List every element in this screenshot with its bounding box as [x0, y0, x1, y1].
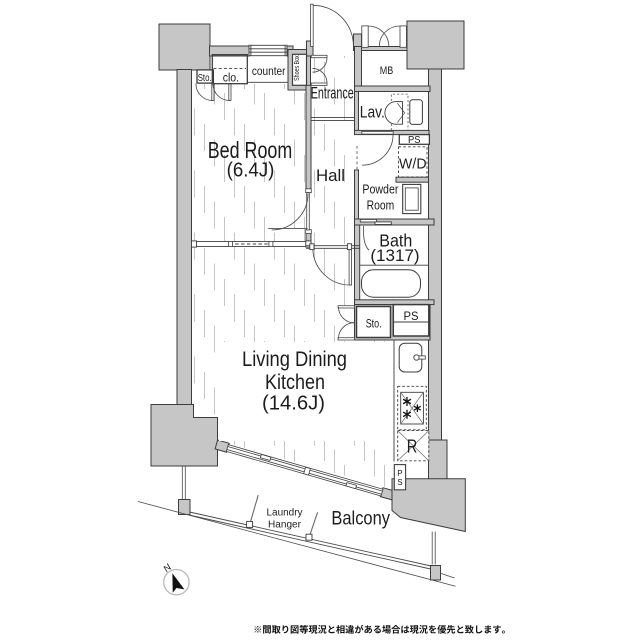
svg-text:MB: MB [380, 65, 394, 77]
svg-text:(6.4J): (6.4J) [227, 159, 275, 182]
svg-text:Entrance: Entrance [311, 85, 354, 103]
svg-text:PS: PS [408, 134, 421, 146]
svg-text:Living Dining: Living Dining [242, 348, 347, 371]
svg-text:counter: counter [252, 66, 286, 78]
svg-text:Sto.: Sto. [366, 318, 382, 330]
svg-text:Powder: Powder [362, 182, 398, 197]
svg-text:P: P [397, 469, 402, 478]
svg-text:Room: Room [367, 198, 395, 213]
svg-text:Shoes Box: Shoes Box [294, 55, 301, 81]
svg-text:clo.: clo. [223, 73, 239, 85]
svg-text:Lav.: Lav. [360, 104, 385, 122]
svg-text:Hanger: Hanger [268, 520, 302, 531]
svg-text:Sto.: Sto. [198, 73, 212, 84]
svg-text:PS: PS [404, 311, 419, 323]
svg-text:S: S [397, 478, 402, 487]
svg-text:W/D: W/D [399, 155, 427, 172]
svg-text:(14.6J): (14.6J) [262, 393, 325, 415]
svg-text:Balcony: Balcony [331, 508, 390, 530]
svg-text:Hall: Hall [316, 167, 345, 185]
svg-text:R: R [407, 436, 418, 456]
svg-text:(1317): (1317) [370, 247, 419, 265]
svg-text:Kitchen: Kitchen [265, 371, 325, 394]
svg-text:Laundry: Laundry [267, 508, 303, 519]
